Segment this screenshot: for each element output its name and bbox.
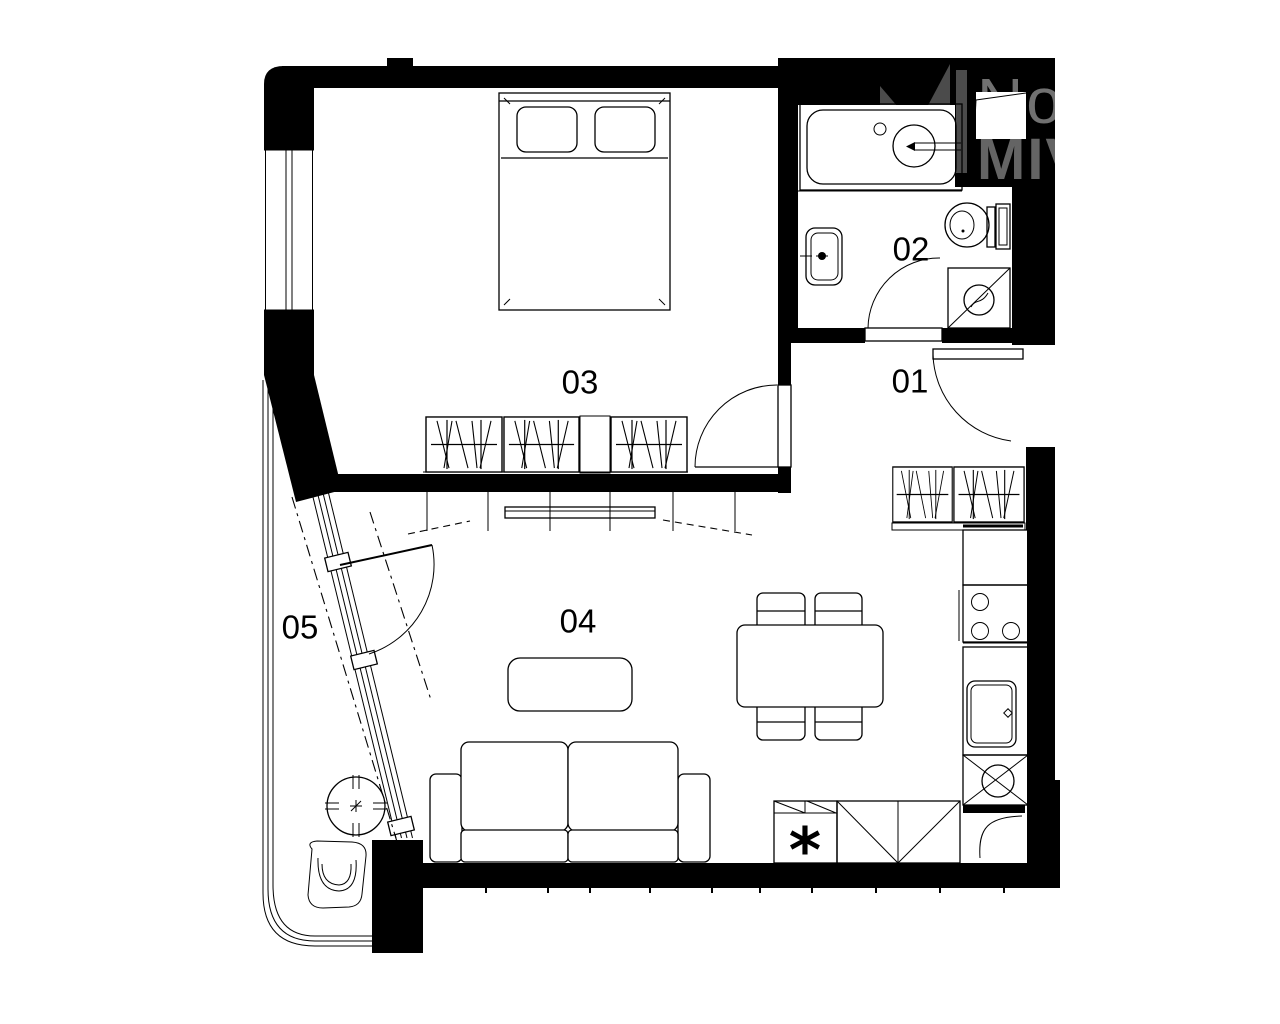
pillow [595,107,655,152]
door-swing-arc [369,545,434,654]
kitchen-sink [963,647,1028,755]
wall-bottom [423,863,1060,888]
sofa-armrest [678,774,710,862]
bathtub [798,104,962,191]
wardrobe [426,417,502,472]
wall-bedroom-bathroom [778,58,798,343]
wall-shaft-opening [974,92,1026,139]
wall-right-below-entry [1026,447,1055,530]
wall-left-mid [264,310,314,375]
wall-kitchen-right [1027,530,1055,783]
toilet [945,203,1010,249]
balcony-table [325,775,387,837]
projection-lines [408,492,752,535]
shower [948,268,1010,328]
balcony-chair [308,841,366,908]
drain-icon [1004,709,1012,717]
burner [972,623,989,640]
wall-top-bedroom [282,66,790,88]
sofa-seat [461,742,568,831]
door-leaf [933,349,1023,359]
hall-wardrobe [892,467,1025,530]
room-label-01: 01 [892,363,929,400]
shaft-panel [975,813,1025,863]
counter-cell [963,530,1028,585]
sofa-back [568,830,678,862]
door-swing-arc [695,385,777,467]
bedroom-door [695,385,791,467]
wall-strip-under-sink [963,805,1025,813]
burner [972,594,989,611]
wardrobe [504,417,579,472]
dimension-ticks [486,888,1004,893]
mullion [351,650,378,669]
entrance-door [933,349,1023,441]
room-label-05: 05 [282,609,319,646]
sofa [430,742,710,862]
door-swing-arc [868,258,940,328]
wall-bath-bottom-left [798,328,865,343]
shower-drain [964,285,994,315]
wall-left-wedge [264,375,342,502]
double-bed [499,93,670,310]
door-swing-arc [933,355,1011,441]
wardrobe-gap [580,416,610,473]
hob [959,585,1028,642]
dining-set [737,593,883,740]
tv-sideboard [505,507,655,518]
sofa-seat [568,742,678,831]
living-room [408,492,883,862]
floor-plan: No MIV [0,0,1280,1024]
wall-top-step [387,58,413,68]
sofa-armrest [430,774,462,862]
kitchen: * [774,530,1028,887]
bedroom [264,93,791,473]
wardrobe [893,467,952,522]
room-label-03: 03 [562,364,599,401]
washbasin [800,228,842,285]
door-leaf [778,385,791,467]
wall-top-bathroom [790,58,955,105]
toilet-tank [987,207,995,247]
dining-table [737,625,883,707]
wall-bath-bottom-right [942,328,1012,343]
wall-bottom-left-stub [372,840,423,953]
wall-bedroom-bottom [323,474,790,492]
freezer-mark: * [789,814,821,887]
bathroom-door [865,258,942,341]
sofa-back [461,830,568,862]
bedroom-window [264,150,314,310]
room-label-02: 02 [893,231,930,268]
wardrobe [611,417,687,472]
balcony-glazing [292,493,431,845]
wall-right-upper [1012,187,1055,345]
room-label-04: 04 [560,603,597,640]
base-cabinets [837,801,960,863]
door-leaf [865,328,942,341]
bedroom-wardrobes [423,416,688,473]
bathtub-drain [874,123,886,135]
pillow [517,107,577,152]
wall-bedroom-hall-upper [778,343,791,385]
wardrobe [954,467,1024,522]
coffee-table [508,658,632,711]
burner [1003,623,1020,640]
dishwasher [963,755,1028,805]
